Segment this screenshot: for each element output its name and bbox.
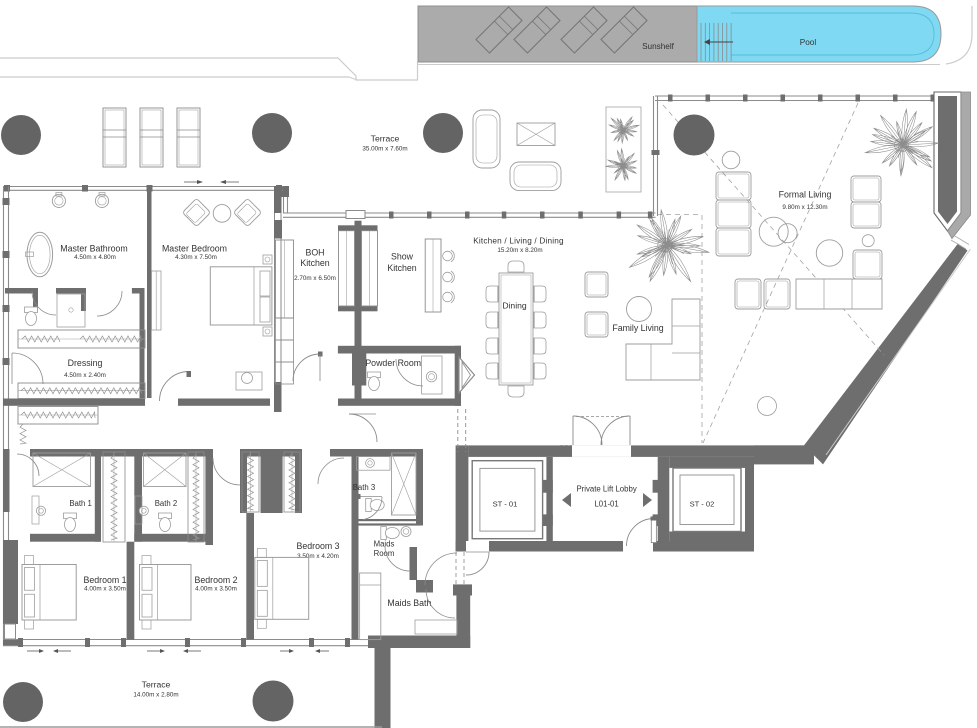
svg-text:Bath 1: Bath 1 bbox=[69, 499, 92, 508]
svg-text:Bath 2: Bath 2 bbox=[155, 499, 178, 508]
svg-text:Show: Show bbox=[391, 252, 414, 262]
svg-text:Bedroom 3: Bedroom 3 bbox=[296, 541, 339, 551]
svg-text:Dining: Dining bbox=[502, 301, 527, 311]
svg-text:Sunshelf: Sunshelf bbox=[642, 42, 675, 51]
svg-text:Master Bathroom: Master Bathroom bbox=[60, 243, 127, 253]
svg-text:2.70m x 6.50m: 2.70m x 6.50m bbox=[294, 275, 336, 282]
svg-text:Bedroom 2: Bedroom 2 bbox=[194, 575, 237, 585]
svg-text:ST - 01: ST - 01 bbox=[493, 500, 518, 509]
svg-text:ST - 02: ST - 02 bbox=[690, 500, 715, 509]
svg-text:14.00m x 2.80m: 14.00m x 2.80m bbox=[133, 692, 178, 699]
svg-text:Master Bedroom: Master Bedroom bbox=[162, 243, 227, 253]
svg-text:Maids Bath: Maids Bath bbox=[387, 598, 431, 608]
svg-text:35.00m x 7.60m: 35.00m x 7.60m bbox=[362, 145, 407, 152]
svg-text:4.00m x 3.50m: 4.00m x 3.50m bbox=[84, 586, 126, 593]
svg-text:Bath 3: Bath 3 bbox=[353, 483, 376, 492]
svg-text:Formal Living: Formal Living bbox=[779, 190, 832, 200]
svg-text:Dressing: Dressing bbox=[68, 358, 103, 368]
svg-text:Maids: Maids bbox=[374, 540, 395, 549]
svg-text:9.80m x 12.30m: 9.80m x 12.30m bbox=[782, 204, 827, 211]
svg-text:Family Living: Family Living bbox=[612, 323, 663, 333]
svg-text:4.50m x 4.80m: 4.50m x 4.80m bbox=[74, 254, 116, 261]
svg-text:4.50m x 2.40m: 4.50m x 2.40m bbox=[64, 372, 106, 379]
svg-text:4.30m x 7.50m: 4.30m x 7.50m bbox=[175, 254, 217, 261]
svg-text:BOH: BOH bbox=[305, 248, 324, 258]
svg-text:Kitchen: Kitchen bbox=[300, 258, 329, 268]
svg-text:Pool: Pool bbox=[800, 38, 817, 47]
svg-text:Powder Room: Powder Room bbox=[365, 358, 421, 368]
svg-text:15.20m x 8.20m: 15.20m x 8.20m bbox=[497, 247, 542, 254]
svg-text:Kitchen: Kitchen bbox=[387, 263, 416, 273]
svg-text:Terrace: Terrace bbox=[142, 680, 171, 690]
svg-text:L01-01: L01-01 bbox=[594, 500, 618, 509]
svg-text:Room: Room bbox=[374, 549, 395, 558]
svg-text:Terrace: Terrace bbox=[371, 134, 400, 144]
svg-text:3.50m x 4.20m: 3.50m x 4.20m bbox=[297, 553, 339, 560]
svg-text:Bedroom 1: Bedroom 1 bbox=[83, 575, 126, 585]
svg-text:Kitchen / Living / Dining: Kitchen / Living / Dining bbox=[473, 237, 564, 246]
svg-text:4.00m x 3.50m: 4.00m x 3.50m bbox=[195, 586, 237, 593]
svg-text:Private Lift Lobby: Private Lift Lobby bbox=[576, 485, 636, 494]
